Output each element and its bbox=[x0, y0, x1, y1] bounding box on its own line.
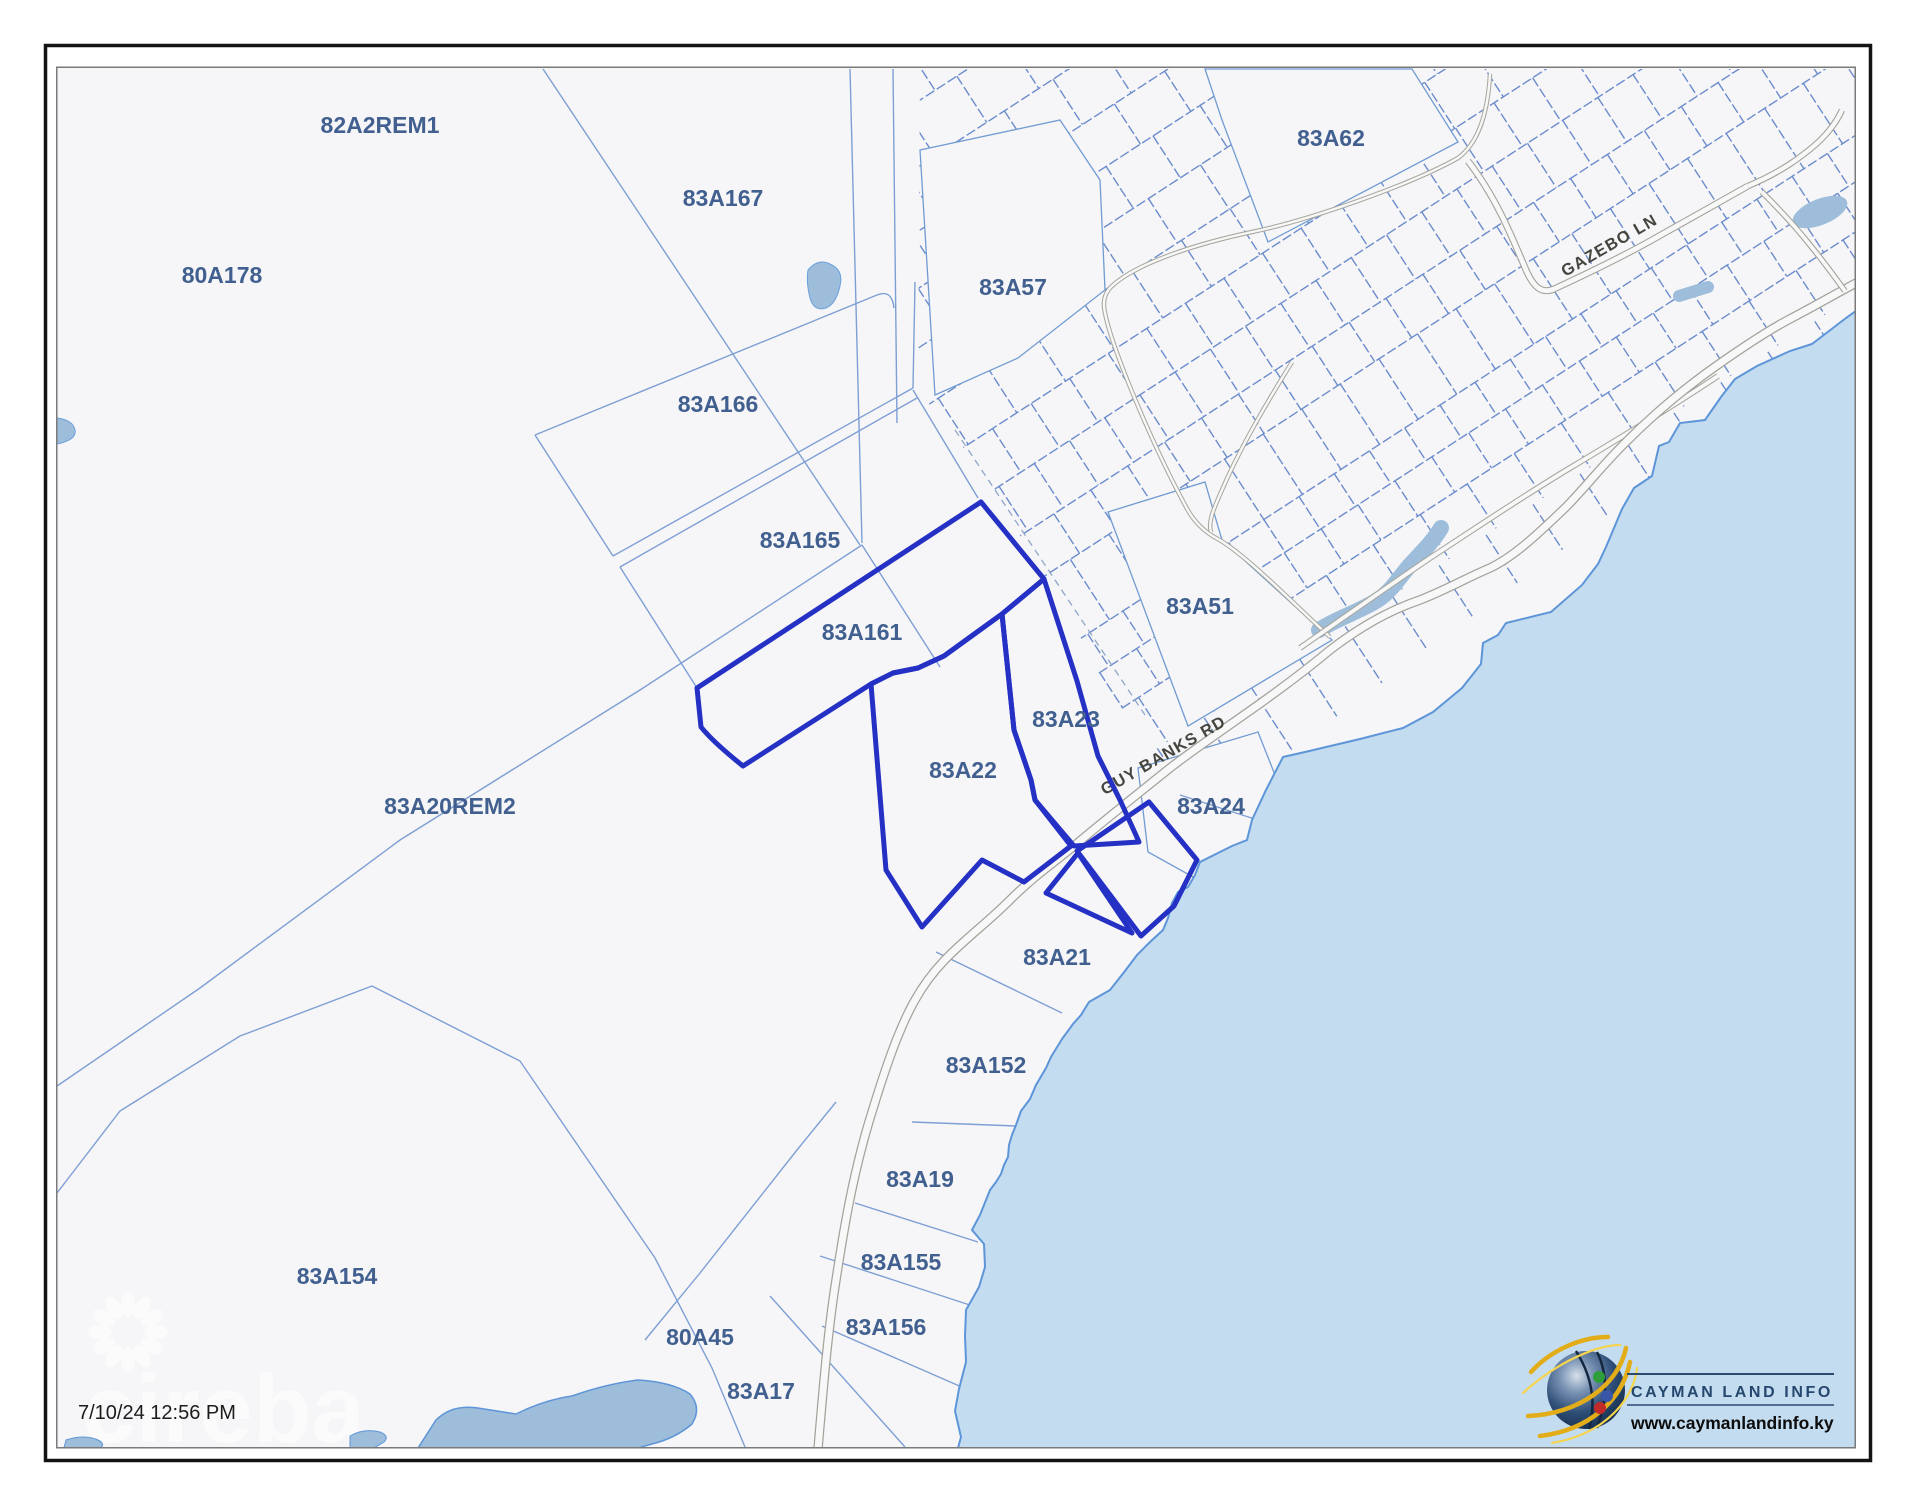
svg-text:7/10/24 12:56 PM: 7/10/24 12:56 PM bbox=[78, 1402, 236, 1424]
svg-text:80A178: 80A178 bbox=[182, 262, 263, 288]
svg-text:CAYMAN LAND INFO: CAYMAN LAND INFO bbox=[1631, 1384, 1833, 1401]
svg-text:83A23: 83A23 bbox=[1032, 706, 1100, 732]
svg-text:www.caymanlandinfo.ky: www.caymanlandinfo.ky bbox=[1630, 1413, 1834, 1433]
svg-text:83A154: 83A154 bbox=[297, 1263, 378, 1289]
svg-text:83A22: 83A22 bbox=[929, 757, 997, 783]
svg-text:83A17: 83A17 bbox=[727, 1378, 795, 1404]
svg-text:83A161: 83A161 bbox=[822, 619, 903, 645]
svg-text:83A57: 83A57 bbox=[979, 274, 1047, 300]
svg-text:83A62: 83A62 bbox=[1297, 125, 1365, 151]
svg-text:83A165: 83A165 bbox=[760, 527, 841, 553]
svg-text:80A45: 80A45 bbox=[666, 1324, 734, 1350]
svg-text:83A21: 83A21 bbox=[1023, 944, 1091, 970]
svg-text:83A152: 83A152 bbox=[946, 1052, 1027, 1078]
svg-text:83A156: 83A156 bbox=[846, 1314, 927, 1340]
svg-text:83A166: 83A166 bbox=[678, 391, 759, 417]
svg-text:83A20REM2: 83A20REM2 bbox=[384, 793, 516, 819]
svg-text:83A51: 83A51 bbox=[1166, 593, 1234, 619]
svg-text:82A2REM1: 82A2REM1 bbox=[321, 112, 440, 138]
svg-text:83A155: 83A155 bbox=[861, 1249, 942, 1275]
svg-text:83A19: 83A19 bbox=[886, 1166, 954, 1192]
svg-text:83A167: 83A167 bbox=[683, 185, 764, 211]
svg-text:83A24: 83A24 bbox=[1177, 793, 1245, 819]
